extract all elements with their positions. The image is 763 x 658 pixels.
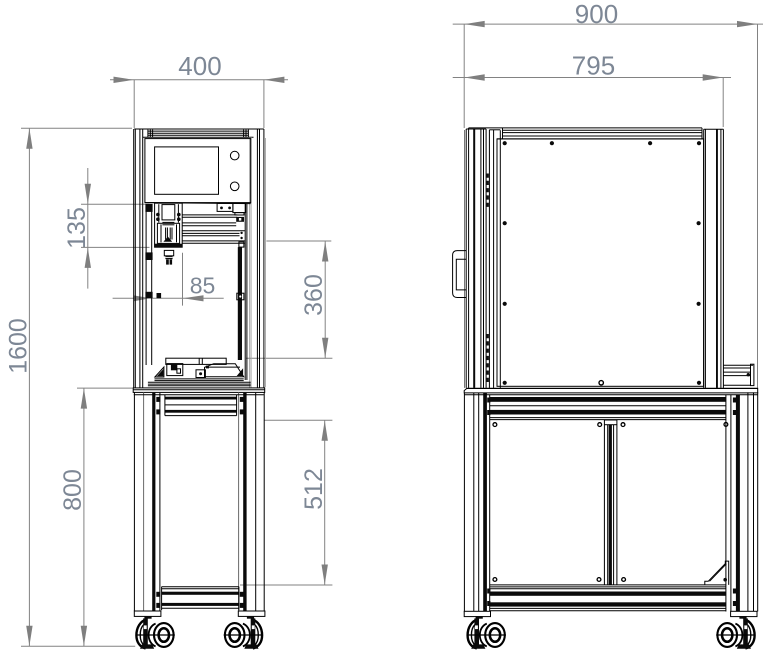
svg-text:400: 400 [178,51,221,81]
svg-text:795: 795 [572,51,615,81]
svg-text:512: 512 [300,468,328,510]
svg-text:1600: 1600 [5,318,33,374]
svg-text:135: 135 [63,207,91,249]
svg-text:360: 360 [300,274,328,316]
svg-text:900: 900 [575,0,618,29]
svg-text:800: 800 [59,469,87,511]
svg-text:85: 85 [190,273,216,299]
